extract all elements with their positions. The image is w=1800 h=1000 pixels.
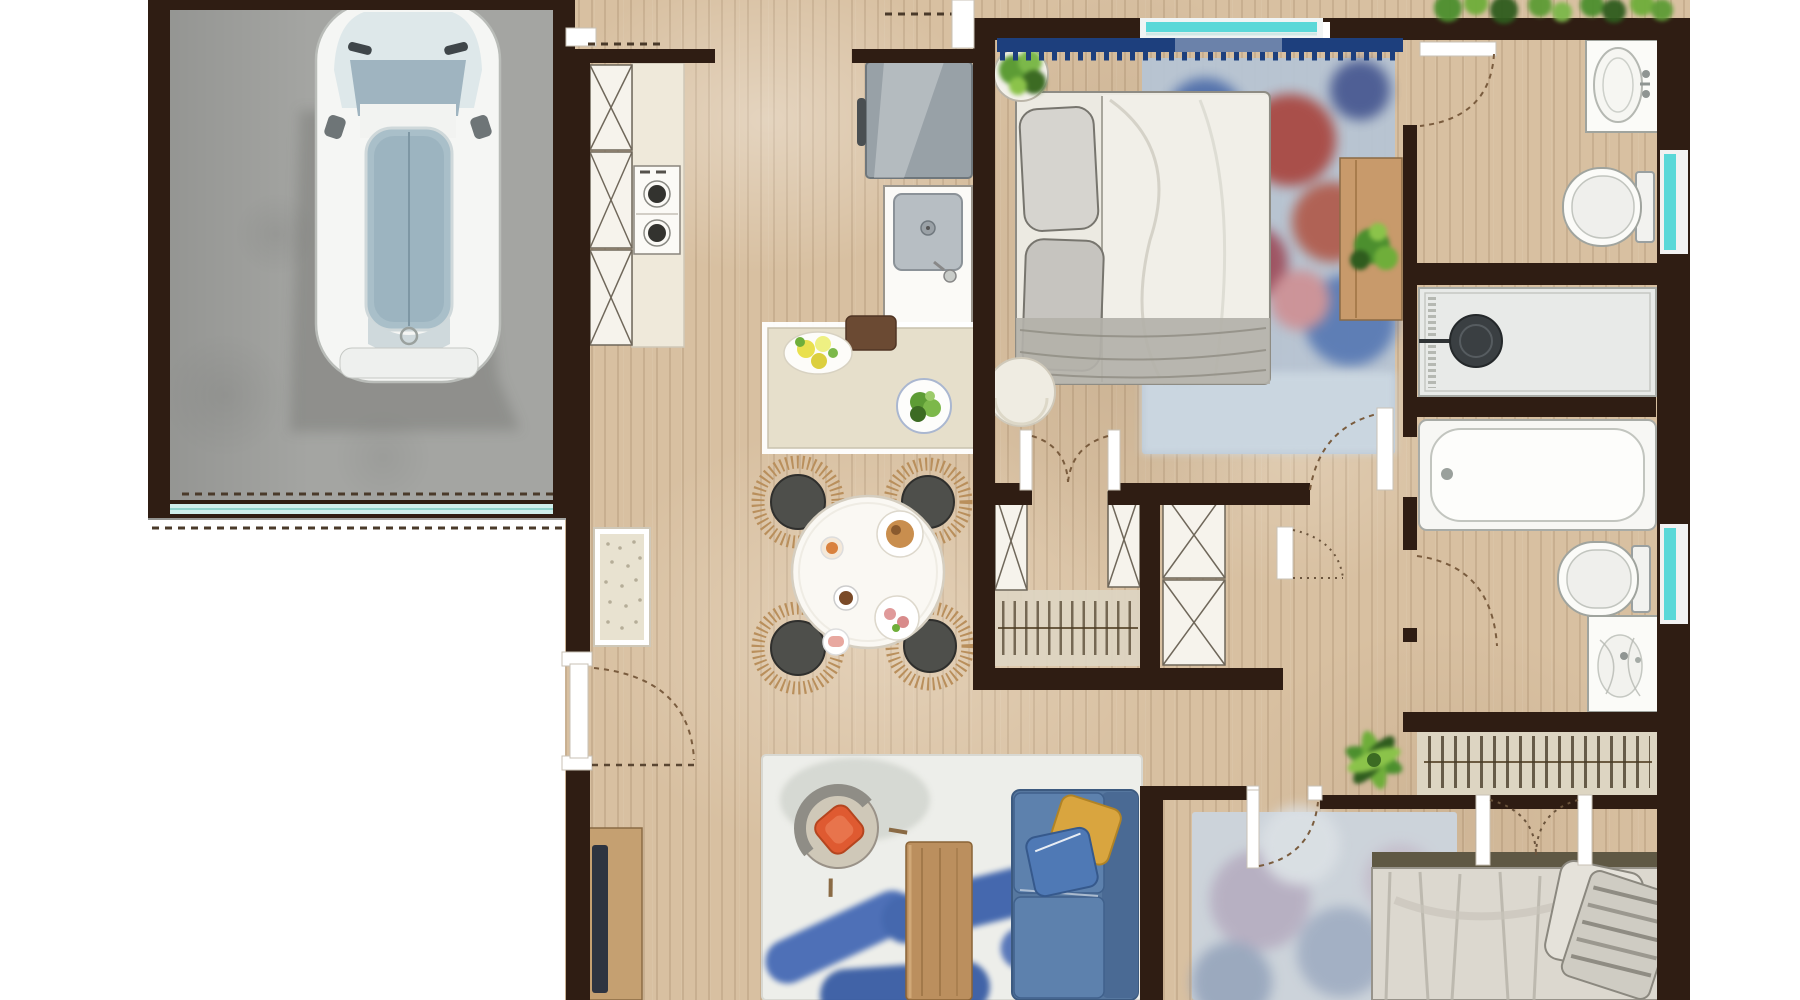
sofa xyxy=(1012,790,1138,1000)
car xyxy=(316,2,500,382)
door-arc xyxy=(1420,54,1494,126)
bed-2 xyxy=(1372,852,1681,1000)
serving-tray xyxy=(846,316,896,350)
lemon-plate xyxy=(784,332,852,374)
closet-door-leaf xyxy=(1108,430,1120,490)
kitchen-sink-unit xyxy=(884,186,972,334)
bathroom-lower xyxy=(1558,542,1660,712)
door-arc xyxy=(1068,436,1108,482)
bedroom-1-door-leaf xyxy=(1377,408,1393,490)
plan-drawing xyxy=(0,0,1800,1000)
bathroom-door-leaf xyxy=(1420,42,1496,56)
walk-in-closet-2 xyxy=(1163,492,1225,665)
bathroom-sink xyxy=(1586,40,1658,132)
linen-closet xyxy=(1417,732,1657,795)
bathtub xyxy=(1419,420,1656,530)
gas-stove xyxy=(634,166,680,254)
door-arc xyxy=(1417,556,1497,646)
potted-plant xyxy=(1342,728,1405,791)
rain-shower-head xyxy=(1450,315,1502,367)
tub-faucet-icon xyxy=(1441,468,1453,480)
pouf xyxy=(987,358,1055,426)
side-door-leaf xyxy=(570,664,588,758)
sliding-door-leaf xyxy=(1578,795,1592,865)
toilet xyxy=(1558,542,1650,616)
nightstand xyxy=(1340,158,1402,320)
blue-pillow xyxy=(1024,826,1099,898)
door-arc xyxy=(1032,436,1068,482)
bedroom-2-door-leaf xyxy=(1247,790,1259,868)
floor-plan xyxy=(0,0,1800,1000)
closet-door-leaf xyxy=(1020,430,1032,490)
window xyxy=(1660,150,1688,254)
bathroom-top xyxy=(1563,40,1658,246)
kitchen xyxy=(590,62,980,454)
hall-console xyxy=(594,528,650,646)
door-arc xyxy=(594,668,694,760)
kitchen-cabinet-x-fronts xyxy=(590,65,632,345)
island-counter xyxy=(762,316,980,454)
garage-door xyxy=(164,500,570,518)
salad-bowl xyxy=(897,379,951,433)
tv-console xyxy=(588,828,642,1000)
toilet xyxy=(1563,168,1654,246)
door-arc xyxy=(1293,530,1343,578)
sliding-door-leaf xyxy=(1476,795,1490,865)
refrigerator-handle xyxy=(857,98,866,146)
window-valance xyxy=(997,38,1403,56)
bed-1 xyxy=(1016,92,1270,384)
walk-in-shower xyxy=(1419,288,1656,396)
window xyxy=(1660,524,1688,624)
sink-faucet xyxy=(944,270,956,282)
washbasin xyxy=(1588,616,1660,712)
entry-door-jamb xyxy=(952,0,974,48)
garage xyxy=(152,2,574,528)
tv xyxy=(592,845,608,993)
pillow xyxy=(1019,106,1099,232)
coffee-table xyxy=(906,842,972,1000)
dining-area xyxy=(758,462,968,688)
walk-in-closet-1 xyxy=(995,492,1140,666)
refrigerator xyxy=(857,62,972,178)
closet-2-door-leaf xyxy=(1277,527,1293,579)
